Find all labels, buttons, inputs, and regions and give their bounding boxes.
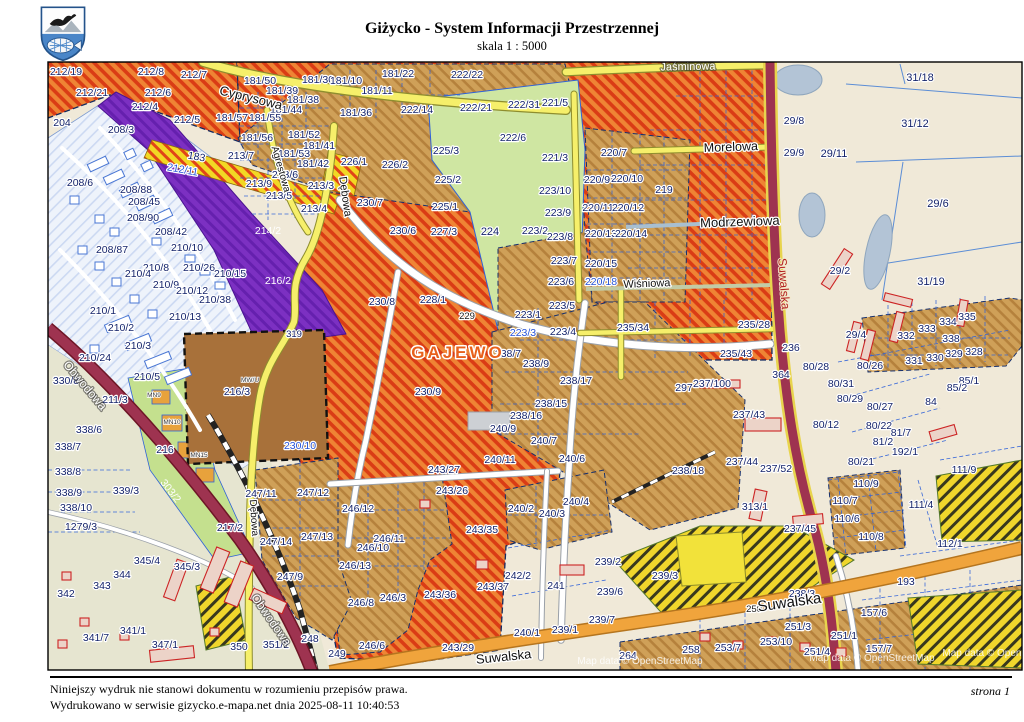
parcel-label: 181/56 (241, 132, 273, 144)
parcel-label: 213/5 (266, 190, 292, 202)
parcel-label: 213/9 (246, 178, 272, 190)
parcel-label: 181/57 (216, 112, 248, 124)
parcel-label: 225/3 (433, 145, 459, 157)
parcel-label: 247/13 (301, 531, 333, 543)
parcel-label: 328 (965, 346, 983, 358)
parcel-label: 212/21 (76, 87, 108, 99)
parcel-label: 329 (945, 348, 963, 360)
parcel-label: 222/21 (460, 102, 492, 114)
building (112, 278, 121, 286)
building (152, 238, 161, 245)
parcel-label: 240/6 (559, 453, 585, 465)
parcel-label: 210/2 (108, 322, 134, 334)
parcel-label: 219 (655, 184, 673, 196)
parcel-label: 240/3 (539, 508, 565, 520)
parcel-label: 80/12 (813, 419, 839, 431)
parcel-label: 246/6 (359, 640, 385, 652)
parcel-label: 29/9 (784, 147, 805, 159)
street-label: Modrzewiowa (700, 213, 781, 231)
parcel-label: 220/9 (584, 174, 610, 186)
parcel-label: 240/4 (563, 496, 589, 508)
parcel-label: 338/9 (56, 487, 82, 499)
parcel-label: 342 (57, 588, 75, 600)
parcel-label: 29/8 (784, 115, 805, 127)
parcel-label: 334 (939, 316, 957, 328)
zone-code-label: MW/U (241, 377, 259, 384)
parcel-label: 230/6 (390, 225, 416, 237)
parcel-label: 220/7 (601, 147, 627, 159)
parcel-label: 212/5 (174, 114, 200, 126)
building (58, 640, 67, 648)
parcel-label: 1279/3 (65, 521, 97, 533)
parcel-label: 246/12 (342, 503, 374, 515)
parcel-label: 223/6 (548, 276, 574, 288)
building (80, 618, 89, 626)
parcel-label: 208/87 (96, 244, 128, 256)
parcel-label: 221/5 (542, 97, 568, 109)
pond (799, 193, 825, 237)
parcel-label: 222/31 (508, 99, 540, 111)
parcel-label: 223/5 (549, 300, 575, 312)
parcel-label: 338/10 (60, 502, 92, 514)
parcel-label: 208/3 (108, 124, 134, 136)
parcel-label: 237/44 (726, 456, 758, 468)
parcel-label: 208/6 (67, 177, 93, 189)
parcel-label: 208/90 (127, 212, 159, 224)
building (185, 255, 195, 262)
parcel-label: 81/2 (873, 436, 894, 448)
parcel-label: 181/11 (361, 85, 392, 97)
parcel-label: 239/6 (597, 586, 623, 598)
parcel-label: 223/2 (522, 225, 548, 237)
building (130, 295, 139, 303)
parcel-label: 338 (942, 333, 960, 345)
parcel-label: 223/3 (510, 327, 536, 339)
parcel-label: 240/9 (490, 423, 516, 435)
parcel-label: 246/13 (339, 560, 371, 572)
parcel-label: 239/3 (652, 570, 678, 582)
parcel-label: 247/14 (260, 536, 292, 548)
parcel-label: 29/11 (821, 148, 848, 160)
parcel-label: 344 (113, 569, 131, 581)
street-label: GAJEWO (411, 343, 505, 362)
parcel-label: 31/18 (906, 72, 934, 84)
street-label: Wiśniowa (623, 277, 671, 291)
parcel-label: 223/1 (515, 309, 541, 321)
parcel-label: 335 (958, 311, 976, 323)
parcel-label: 246/10 (357, 542, 389, 554)
parcel-label: 210/15 (214, 268, 246, 280)
parcel-label: 217/2 (217, 522, 243, 534)
parcel-label: 80/29 (837, 393, 863, 405)
parcel-label: 193 (897, 576, 915, 588)
parcel-label: 208/45 (128, 196, 160, 208)
parcel-label: 210/26 (183, 262, 215, 274)
parcel-label: 192/1 (892, 446, 918, 458)
parcel-label: 210/38 (199, 294, 231, 306)
parcel-label: 331 (905, 355, 923, 367)
parcel-label: 112/1 (937, 538, 963, 550)
parcel-label: 240/7 (531, 435, 557, 447)
parcel-label: 214/2 (255, 225, 281, 237)
parcel-label: 237/43 (733, 409, 765, 421)
footer: Niniejszy wydruk nie stanowi dokumentu w… (50, 676, 1012, 713)
building (420, 500, 430, 508)
parcel-label: 29/4 (846, 329, 867, 341)
osm-watermark: Map data © OpenStreetMap (809, 653, 935, 664)
parcel-label: 238/9 (523, 358, 549, 370)
parcel-label: 210/5 (134, 371, 160, 383)
parcel-label: 238/16 (510, 410, 542, 422)
parcel-label: 212/6 (145, 87, 171, 99)
parcel-label: 332 (897, 330, 915, 342)
map-canvas: 212/19212/8212/7212/21212/6212/4212/5204… (0, 0, 1024, 722)
parcel-label: 181/22 (382, 68, 414, 80)
parcel-label: 246/8 (348, 597, 374, 609)
parcel-label: 216/3 (224, 386, 250, 398)
parcel-label: 313/1 (742, 501, 768, 513)
parcel-label: 225/1 (432, 201, 458, 213)
parcel-label: 220/11 (582, 202, 613, 214)
parcel-label: 341/1 (120, 625, 146, 637)
osm-watermark: Map data © OpenStreetMap (942, 648, 1024, 659)
parcel-label: 240/11 (484, 454, 515, 466)
parcel-label: 110/7 (832, 495, 858, 507)
parcel-label: 210/3 (125, 340, 151, 352)
parcel-label: 230/8 (369, 296, 395, 308)
parcel-label: 222/14 (401, 104, 433, 116)
parcel-label: 204 (53, 117, 71, 129)
page-number: strona 1 (971, 683, 1010, 699)
parcel-label: 157/6 (861, 607, 887, 619)
parcel-label: 347/1 (152, 639, 178, 651)
parcel-label: 239/7 (589, 614, 615, 626)
zone-code-label: MN15 (190, 452, 208, 459)
parcel-label: 241 (547, 580, 565, 592)
parcel-label: 210/24 (79, 352, 111, 364)
parcel-label: 31/12 (901, 118, 929, 130)
parcel-label: 110/8 (858, 531, 884, 543)
parcel-label: 229 (459, 311, 475, 322)
parcel-label: 237/100 (693, 378, 731, 390)
parcel-label: 338/8 (55, 466, 81, 478)
parcel-label: 243/35 (466, 524, 498, 536)
building (70, 196, 79, 204)
building (95, 215, 104, 223)
footer-disclaimer: Niniejszy wydruk nie stanowi dokumentu w… (50, 681, 1012, 697)
parcel-label: 235/28 (738, 319, 770, 331)
parcel-label: 345/4 (134, 555, 160, 567)
parcel-label: 253/7 (715, 642, 741, 654)
building (215, 282, 225, 289)
parcel-label: 208/88 (120, 184, 152, 196)
building (95, 262, 104, 270)
parcel-label: 181/10 (330, 75, 362, 87)
parcel-label: 220/15 (585, 258, 617, 270)
parcel-label: 230/7 (357, 197, 383, 209)
parcel-label: 339/3 (113, 485, 139, 497)
parcel-label: 333 (918, 323, 936, 335)
parcel-label: 29/2 (830, 265, 851, 277)
parcel-label: 251/3 (785, 621, 811, 633)
parcel-label: 248 (301, 633, 319, 645)
parcel-label: 223/7 (551, 255, 577, 267)
parcel-label: 110/9 (853, 478, 879, 490)
parcel-label: 223/10 (539, 185, 571, 197)
parcel-label: 243/27 (428, 464, 460, 476)
parcel-label: 210/4 (125, 268, 151, 280)
parcel-label: 80/22 (866, 420, 892, 432)
parcel-label: 85/2 (947, 382, 968, 394)
parcel-label: 238/17 (560, 375, 592, 387)
parcel-label: 226/1 (341, 156, 367, 168)
parcel-label: 29/6 (927, 198, 948, 210)
parcel-label: 80/28 (803, 361, 829, 373)
parcel-label: 223/4 (550, 326, 576, 338)
parcel-label: 243/36 (424, 589, 456, 601)
parcel-label: 220/14 (615, 228, 647, 240)
zone-code-label: MN10 (163, 419, 181, 426)
parcel-label: 239/2 (595, 556, 621, 568)
parcel-label: 235/34 (617, 322, 649, 334)
parcel-label: 181/41 (303, 140, 335, 152)
parcel-label: 220/12 (612, 202, 644, 214)
parcel-label: 213/4 (301, 203, 327, 215)
building (476, 560, 488, 569)
parcel-label: 364 (772, 369, 790, 381)
parcel-label: 212/7 (181, 69, 207, 81)
parcel-label: 213/3 (308, 180, 334, 192)
parcel-label: 236 (782, 342, 800, 354)
parcel-label: 181/42 (297, 158, 329, 170)
building (210, 628, 219, 636)
parcel-label: 212/8 (138, 66, 164, 78)
parcel-label: 247/11 (245, 488, 276, 500)
parcel-label: 80/27 (867, 401, 893, 413)
zone-code-label: MN9 (147, 392, 161, 399)
parcel-label: 237/52 (760, 463, 792, 475)
parcel-label: 230/10 (284, 440, 316, 452)
parcel-label: 240/1 (514, 627, 540, 639)
parcel-label: 330 (926, 352, 944, 364)
parcel-label: 208/42 (155, 226, 187, 238)
parcel-label: 111/9 (952, 464, 977, 476)
footer-printinfo: Wydrukowano w serwisie gizycko.e-mapa.ne… (50, 697, 1012, 713)
parcel-label: 345/3 (174, 561, 200, 573)
parcel-label: 243/26 (436, 485, 468, 497)
parcel-label: 80/26 (857, 360, 883, 372)
parcel-label: 221/3 (542, 152, 568, 164)
parcel-label: 235/43 (720, 348, 752, 360)
parcel-label: 237/45 (784, 523, 816, 535)
parcel-label: 247/12 (297, 487, 329, 499)
parcel-label: 80/31 (828, 378, 854, 390)
building (700, 633, 710, 641)
pond (774, 65, 822, 95)
building (560, 565, 584, 575)
street-label: Morelowa (704, 139, 759, 155)
parcel-label: 222/22 (451, 69, 483, 81)
parcel-label: 111/4 (909, 499, 934, 511)
parcel-label: 81/7 (891, 427, 912, 439)
parcel-label: 223/8 (547, 231, 573, 243)
building (78, 246, 87, 254)
parcel-label: 181/36 (340, 107, 372, 119)
parcel-label: 319 (286, 329, 302, 340)
building (148, 310, 157, 318)
parcel-label: 216/2 (265, 275, 291, 287)
parcel-label: 210/1 (90, 305, 116, 317)
osm-watermark: Map data © OpenStreetMap (577, 656, 703, 667)
parcel-label: 216 (156, 444, 174, 456)
parcel-label: 213/7 (228, 150, 254, 162)
parcel-label: 249 (328, 648, 346, 660)
parcel-label: 222/6 (500, 132, 526, 144)
parcel-label: 210/10 (171, 242, 203, 254)
building (110, 228, 119, 236)
parcel-label: 246/3 (380, 592, 406, 604)
parcel-label: 223/9 (545, 207, 571, 219)
parcel-label: 220/18 (585, 276, 617, 288)
parcel-label: 224 (481, 226, 499, 238)
parcel-label: 343 (93, 580, 111, 592)
parcel-label: 230/9 (415, 386, 441, 398)
parcel-label: 243/29 (442, 642, 474, 654)
parcel-label: 247/9 (277, 571, 303, 583)
parcel-label: 220/13 (585, 228, 617, 240)
parcel-label: 341/7 (83, 632, 109, 644)
parcel-label: 350 (230, 641, 248, 653)
parcel-label: 338/7 (55, 441, 81, 453)
parcel-label: 225/2 (435, 174, 461, 186)
parcel-label: 212/4 (132, 101, 158, 113)
parcel-label: 212/19 (50, 66, 82, 78)
building (62, 572, 71, 580)
parcel-label: 243/37 (477, 581, 509, 593)
parcel-label: 227/3 (431, 226, 457, 238)
parcel-label: 258 (682, 644, 700, 656)
parcel-label: 253/10 (760, 636, 792, 648)
parcel-label: 181/55 (249, 112, 281, 124)
parcel-label: 84 (925, 396, 937, 408)
parcel-label: 251/1 (831, 630, 857, 642)
parcel-label: 110/6 (834, 513, 860, 525)
parcel-label: 238/18 (672, 465, 704, 477)
parcel-label: 31/19 (917, 276, 945, 288)
parcel-label: 240/2 (508, 503, 534, 515)
zone-yellow-parcel (676, 532, 746, 586)
parcel-label: 242/2 (505, 570, 531, 582)
parcel-label: 210/13 (169, 311, 201, 323)
parcel-label: 338/6 (76, 424, 102, 436)
parcel-label: 239/1 (552, 624, 578, 636)
parcel-label: 228/1 (420, 294, 446, 306)
parcel-label: 226/2 (382, 159, 408, 171)
parcel-label: 80/21 (848, 456, 874, 468)
parcel-label: 297 (675, 382, 693, 394)
parcel-label: 220/10 (611, 173, 643, 185)
parcel-label: 238/15 (535, 398, 567, 410)
